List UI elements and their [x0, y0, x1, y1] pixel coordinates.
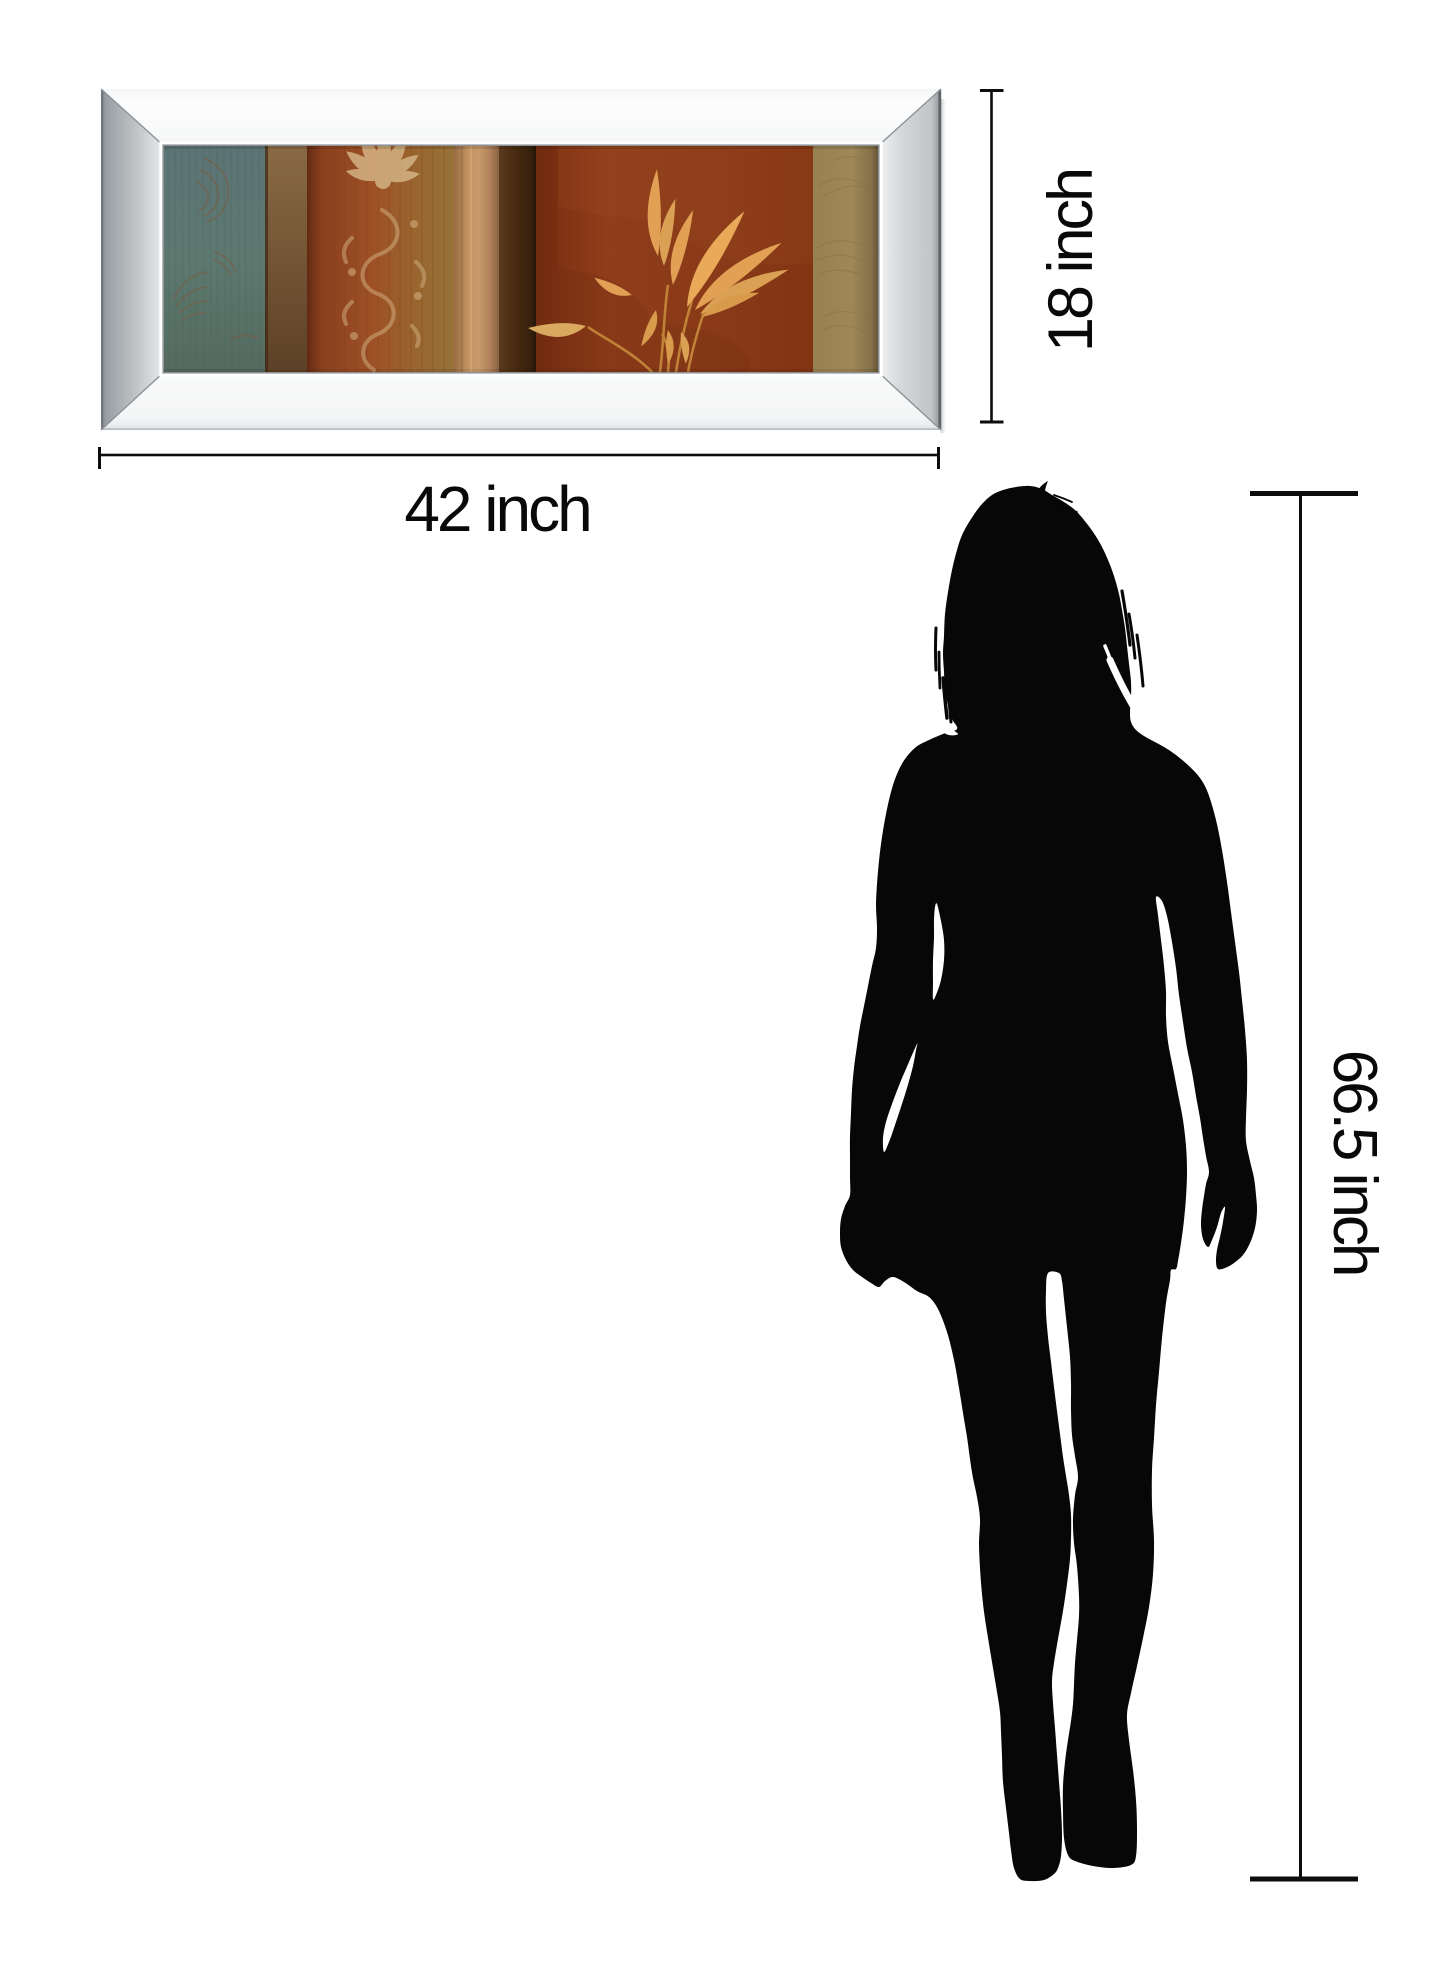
svg-text:66.5 inch: 66.5 inch	[1320, 1050, 1389, 1275]
svg-text:42 inch: 42 inch	[404, 473, 589, 545]
svg-text:18 inch: 18 inch	[1036, 170, 1106, 352]
